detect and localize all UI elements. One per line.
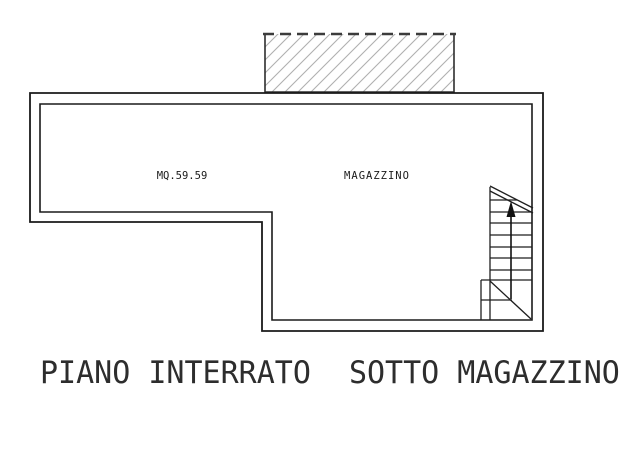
inner-wall-outline	[40, 104, 532, 320]
plan-title-part2: SOTTO MAGAZZINO	[349, 358, 620, 390]
floorplan-page: MQ.59.59 MAGAZZINO PIANO INTERRATO SOTTO…	[0, 0, 640, 466]
plan-title-part1: PIANO INTERRATO	[40, 358, 311, 390]
area-label: MQ.59.59	[157, 170, 208, 182]
floor-plan-drawing: MQ.59.59 MAGAZZINO	[0, 0, 640, 466]
hatch-fill	[265, 34, 454, 92]
stair-winder-steps	[481, 280, 532, 320]
room-label: MAGAZZINO	[344, 170, 410, 182]
staircase	[481, 186, 533, 320]
plan-title: PIANO INTERRATO SOTTO MAGAZZINO	[40, 358, 620, 388]
hatched-wall-section	[263, 34, 456, 92]
stair-up-arrow-icon	[507, 201, 516, 299]
